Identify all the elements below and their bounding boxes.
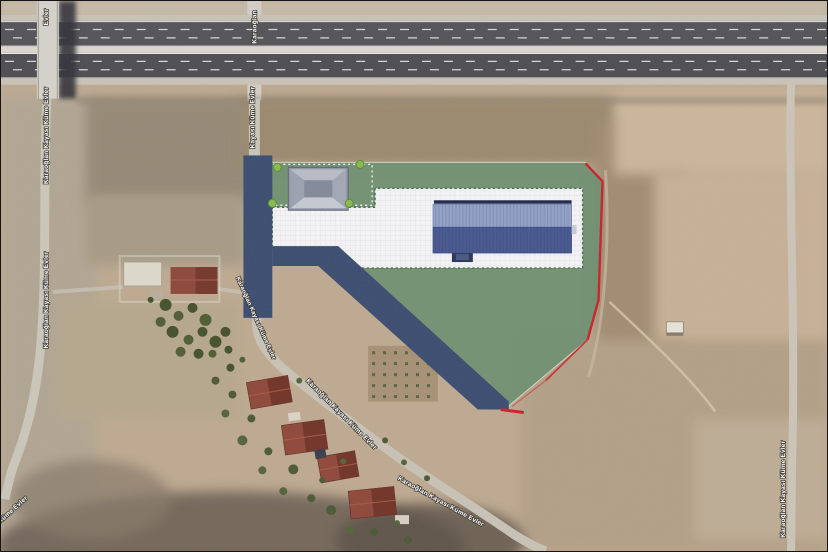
road-label: Karaoğlan Kayası Küme Evler bbox=[43, 251, 50, 348]
photo-grain bbox=[1, 1, 827, 551]
road-label: Karaoğlan Kayası Küme Evler bbox=[780, 440, 787, 537]
road-label: Kayası Küme Evler bbox=[249, 86, 256, 148]
satellite-map: Evler Karaoğlan Kayası Küme Evler Karaoğ… bbox=[1, 1, 827, 551]
road-label: Karaoğlan bbox=[251, 10, 258, 43]
road-label: Karaoğlan Kayası Küme Evler bbox=[43, 87, 50, 184]
map-canvas[interactable]: Evler Karaoğlan Kayası Küme Evler Karaoğ… bbox=[0, 0, 828, 552]
road-label: Evler bbox=[43, 8, 50, 25]
